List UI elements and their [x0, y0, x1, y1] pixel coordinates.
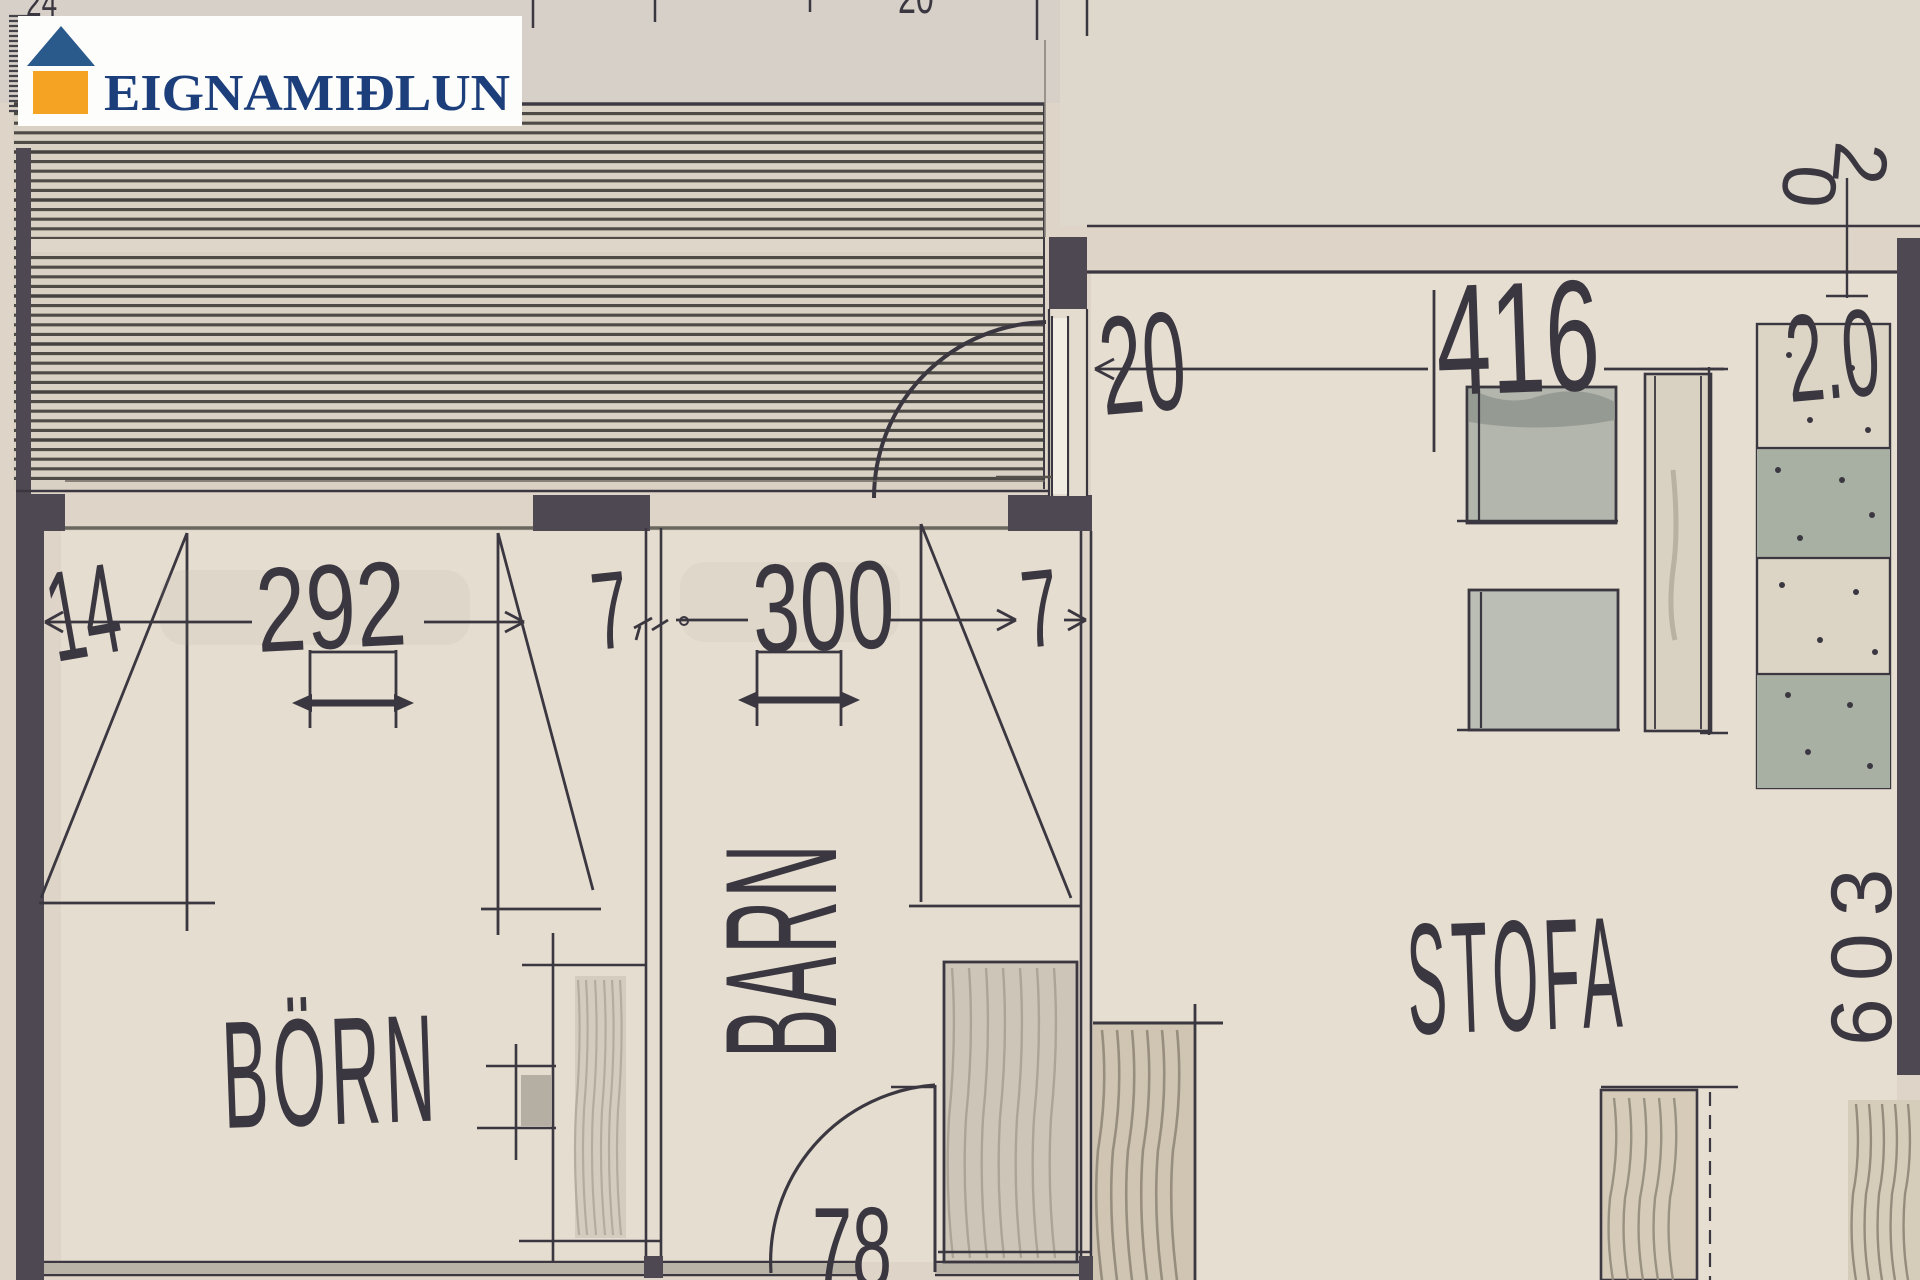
svg-text:416: 416	[1433, 246, 1602, 428]
svg-text:2.0: 2.0	[1780, 284, 1885, 430]
svg-text:EIGNAMIÐLUN: EIGNAMIÐLUN	[104, 65, 510, 122]
svg-text:BÖRN: BÖRN	[219, 984, 442, 1162]
svg-text:78: 78	[812, 1185, 892, 1280]
svg-text:603: 603	[1814, 852, 1910, 1047]
svg-text:0: 0	[1764, 162, 1852, 212]
svg-text:BARN: BARN	[694, 842, 871, 1058]
svg-text:292: 292	[252, 537, 409, 678]
svg-text:20: 20	[1093, 282, 1192, 445]
svg-text:300: 300	[750, 534, 897, 679]
svg-text:20: 20	[898, 0, 934, 23]
svg-text:STOFA: STOFA	[1404, 885, 1629, 1069]
